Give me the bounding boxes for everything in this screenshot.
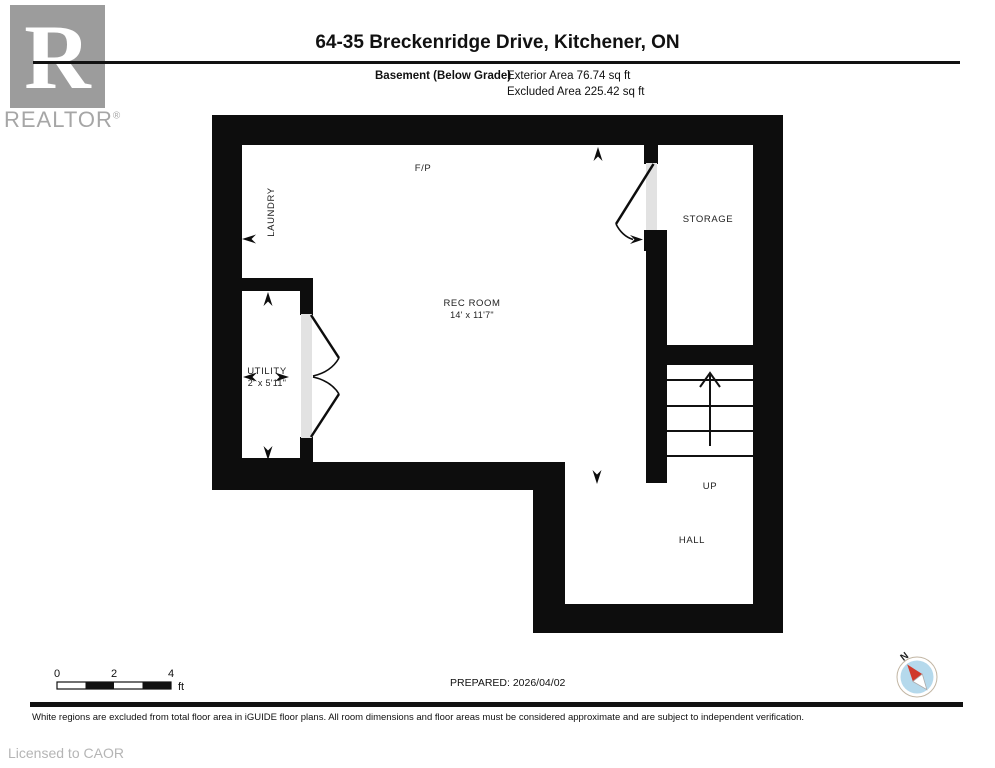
scale-tick-2: 2 — [111, 668, 117, 680]
label-storage: STORAGE — [683, 214, 733, 225]
wall-utility-door-stub-bottom — [300, 437, 313, 471]
scale-bar-segment — [86, 682, 115, 689]
wall-storage-door-stub-bottom — [644, 230, 667, 251]
stair-up-arrow — [700, 373, 720, 446]
realtor-logo: R — [10, 5, 105, 108]
wall-hall-left — [533, 462, 565, 633]
scale-bar: 0 2 4 ft — [50, 664, 190, 694]
label-up: UP — [703, 481, 717, 492]
page-title: 64-35 Breckenridge Drive, Kitchener, ON — [0, 32, 995, 54]
header-divider — [33, 61, 960, 64]
label-hall: HALL — [679, 535, 705, 546]
compass-icon: N — [893, 646, 943, 702]
label-fireplace: F/P — [415, 163, 432, 174]
wall-stairwell-left — [646, 250, 667, 483]
wall-storage-door-stub-top — [644, 145, 658, 164]
scale-tick-4: 4 — [168, 668, 174, 680]
license-text: Licensed to CAOR — [8, 745, 124, 761]
floor-label: Basement (Below Grade) — [375, 70, 511, 82]
realtor-logo-brand: REALTOR — [4, 107, 113, 132]
wall-right — [753, 115, 783, 633]
utility-bifold-door — [311, 315, 339, 437]
label-utility: UTILITY — [247, 366, 287, 377]
wall-utility-door-stub-top — [300, 278, 313, 315]
arrow-left-icon — [242, 235, 256, 244]
footer-divider — [30, 702, 963, 707]
dims-rec-room: 14' x 11'7" — [450, 310, 494, 320]
registered-mark: ® — [113, 111, 121, 122]
floorplan-drawing: F/P LAUNDRY STORAGE REC ROOM 14' x 11'7"… — [200, 105, 800, 645]
wall-storage-bottom — [646, 345, 753, 365]
arrow-down-icon — [593, 470, 602, 484]
utility-door-opening — [301, 314, 312, 438]
dims-utility: 2' x 5'11" — [248, 378, 287, 388]
scale-unit: ft — [178, 681, 184, 693]
floorplan-page: R REALTOR® 64-35 Breckenridge Drive, Kit… — [0, 0, 995, 768]
realtor-logo-wordmark: REALTOR® — [4, 107, 121, 133]
realtor-logo-letter: R — [24, 11, 90, 103]
prepared-date: PREPARED: 2026/04/02 — [450, 677, 565, 689]
disclaimer-text: White regions are excluded from total fl… — [32, 712, 962, 723]
arrow-down-icon — [264, 446, 273, 460]
exterior-area-value: Exterior Area 76.74 sq ft — [507, 70, 630, 82]
scale-bar-segment — [143, 682, 172, 689]
wall-top — [212, 115, 783, 145]
arrow-up-icon — [264, 292, 273, 306]
scale-tick-0: 0 — [54, 668, 60, 680]
label-rec-room: REC ROOM — [443, 298, 500, 309]
arrow-up-icon — [594, 147, 603, 161]
excluded-area-value: Excluded Area 225.42 sq ft — [507, 86, 644, 98]
wall-bottom — [533, 604, 783, 633]
label-laundry: LAUNDRY — [266, 187, 277, 236]
wall-left — [212, 115, 242, 490]
